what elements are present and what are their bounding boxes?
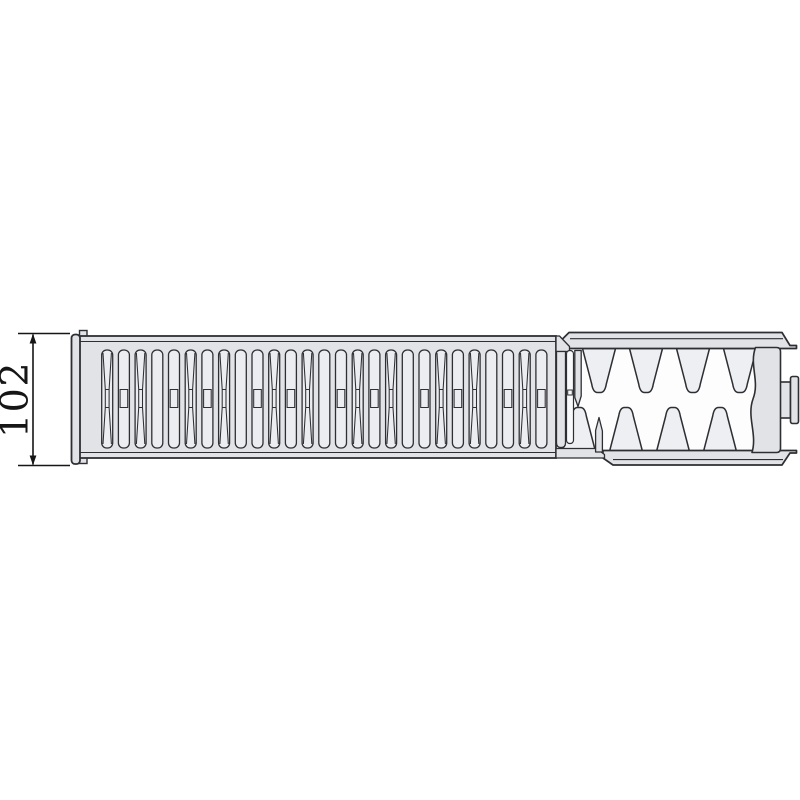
radiator-section	[72, 331, 799, 466]
technical-drawing-canvas: 102	[0, 0, 800, 800]
torn-spike-down	[575, 351, 581, 407]
grille-slot	[486, 350, 497, 448]
left-end-cap	[72, 335, 81, 465]
grille-slots	[102, 350, 547, 448]
front-panel	[79, 336, 556, 458]
grille-slot	[152, 350, 163, 448]
connection-flange	[791, 377, 799, 424]
grille-slot	[402, 350, 413, 448]
torn-strip	[557, 352, 566, 448]
grille-slot	[235, 350, 246, 448]
end-plate	[751, 348, 781, 453]
torn-slot	[567, 351, 574, 444]
grille-slot	[319, 350, 330, 448]
dimension-label: 102	[0, 361, 37, 438]
back-top-rail	[562, 333, 797, 349]
